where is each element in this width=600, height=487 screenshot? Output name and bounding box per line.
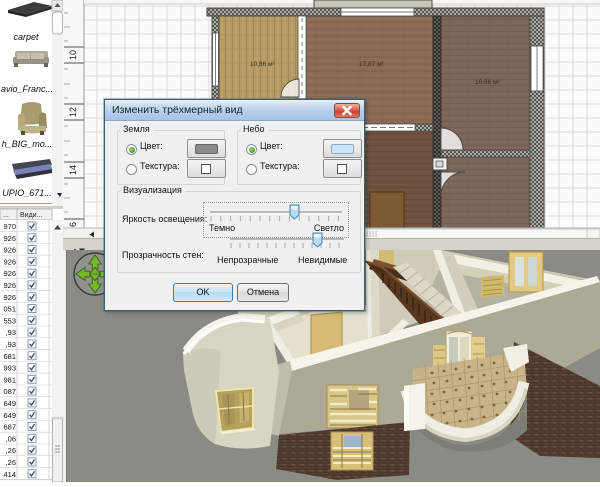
svg-text:,06: ,06 [6,434,16,443]
svg-text:649: 649 [3,411,16,420]
svg-text:926: 926 [3,269,16,278]
svg-text:970: 970 [3,222,16,231]
svg-text:687: 687 [3,423,16,432]
svg-text:926: 926 [3,293,16,302]
svg-text:12: 12 [68,107,78,117]
svg-text:681: 681 [3,352,16,361]
svg-text:UPIO_671...: UPIO_671... [2,188,52,198]
svg-text:10: 10 [68,50,78,60]
svg-text:087: 087 [3,387,16,396]
svg-text:926: 926 [3,257,16,266]
svg-text:h_BIG_mo...: h_BIG_mo... [2,139,53,149]
svg-text:649: 649 [3,399,16,408]
svg-text:414: 414 [3,470,16,479]
svg-text:,26: ,26 [6,446,16,455]
svg-text:,93: ,93 [6,328,16,337]
svg-text:14: 14 [68,165,78,175]
svg-text:avio_Franc...: avio_Franc... [1,84,53,94]
svg-text:...: ... [3,212,9,219]
svg-text:,93: ,93 [6,340,16,349]
svg-text:553: 553 [3,316,16,325]
svg-text:Види...: Види... [20,212,42,219]
svg-text:926: 926 [3,281,16,290]
svg-text:926: 926 [3,234,16,243]
svg-text:051: 051 [3,305,16,314]
svg-text:981: 981 [3,375,16,384]
svg-text:,26: ,26 [6,458,16,467]
svg-text:10,86 м²: 10,86 м² [250,61,276,68]
svg-text:993: 993 [3,364,16,373]
svg-text:17,87 м²: 17,87 м² [359,61,385,68]
svg-text:926: 926 [3,246,16,255]
svg-text:16,66 м²: 16,66 м² [475,79,501,86]
svg-text:carpet: carpet [13,32,39,42]
